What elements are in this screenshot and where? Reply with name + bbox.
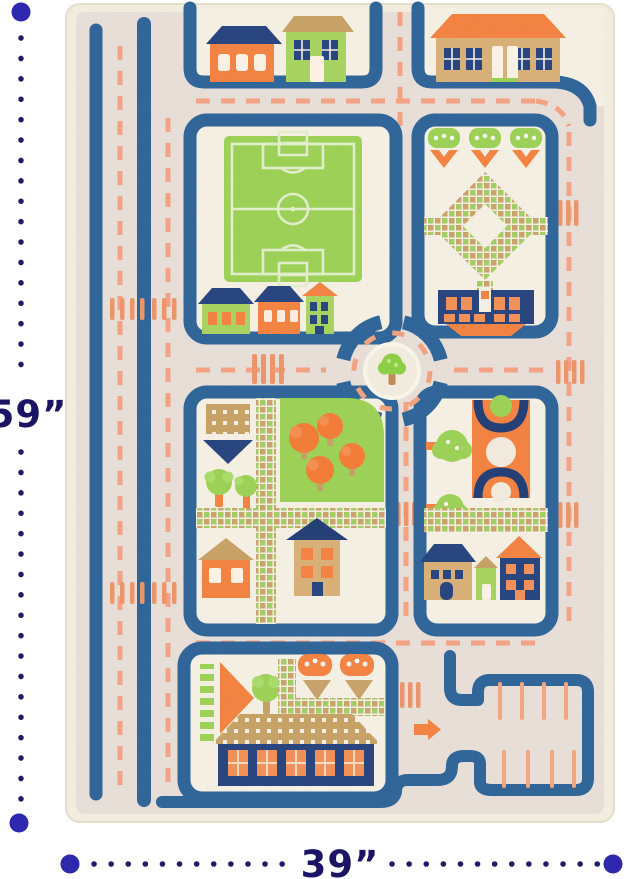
height-dot-top [12,3,31,22]
width-dot-left [61,855,80,874]
rug [66,4,614,822]
height-dimension: 59” [0,3,67,833]
carpet-texture [66,4,614,822]
width-label: 39” [301,843,380,879]
width-dimension: 39” [61,843,623,879]
product-image: 59” 39” [0,0,628,879]
height-dot-bottom [10,814,29,833]
width-dot-right [604,855,623,874]
height-label: 59” [0,393,67,436]
play-rug-illustration: 59” 39” [0,0,628,879]
